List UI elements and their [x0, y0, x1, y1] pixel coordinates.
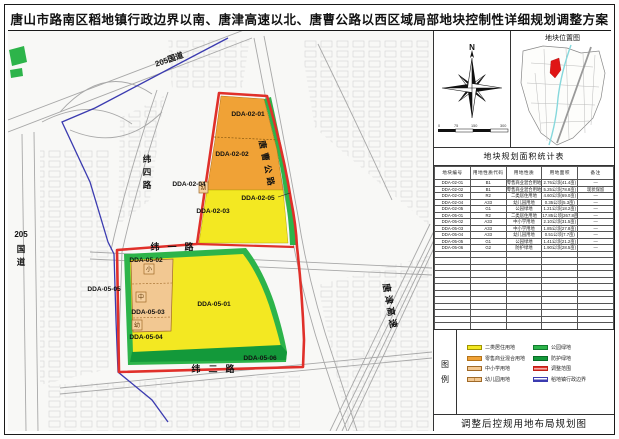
table-title: 地块规划面积统计表 — [434, 148, 614, 166]
legend-item: 调整范围 — [533, 365, 586, 372]
page-title: 唐山市路南区稻地镇行政边界以南、唐津高速以北、唐曹公路以西区域局部地块控制性详细… — [8, 6, 611, 31]
legend-swatch-school — [467, 366, 482, 371]
location-mini-map[interactable] — [511, 43, 612, 147]
legend-swatch-green — [533, 345, 548, 350]
svg-text:0: 0 — [438, 124, 440, 128]
map-label: DDA-02-03 — [196, 208, 230, 215]
right-panel: N 0 75 150 300 — [433, 30, 614, 431]
legend-label: 幼儿园用地 — [485, 376, 510, 383]
legend-label: 公园绿地 — [551, 344, 571, 351]
legend-swatch-blueline — [533, 377, 548, 382]
map-label: DDA-02-05 — [241, 195, 275, 202]
table-empty-row — [435, 323, 614, 330]
legend-label: 调整范围 — [551, 365, 571, 372]
legend-label: 零售商业混合用地 — [485, 355, 525, 362]
legend-items: 二类居住用地零售商业混合用地中小学用地幼儿园用地 公园绿地防护绿地调整范围稻地镇… — [457, 330, 614, 414]
legend-swatch-darkgreen — [533, 356, 548, 361]
plan-sheet: 唐山市路南区稻地镇行政边界以南、唐津高速以北、唐曹公路以西区域局部地块控制性详细… — [0, 0, 619, 439]
legend-item: 中小学用地 — [467, 365, 525, 372]
facility-glyph: 幼 — [134, 321, 140, 329]
table-column-header: 用地性质代码 — [470, 167, 506, 180]
compass-rose-icon — [442, 50, 502, 118]
map-label: DDA-05-01 — [197, 301, 231, 308]
legend-swatch-kindergarten — [467, 377, 482, 382]
legend-item: 零售商业混合用地 — [467, 355, 525, 362]
table-column-header: 用地面积 — [542, 167, 578, 180]
location-map-cell: 地块位置图 — [511, 30, 614, 148]
table-column-header: 备注 — [578, 167, 614, 180]
legend-label: 中小学用地 — [485, 365, 510, 372]
legend-item: 幼儿园用地 — [467, 376, 525, 383]
location-map-title: 地块位置图 — [511, 30, 614, 43]
svg-text:75: 75 — [454, 124, 458, 128]
table-column-header: 用地性质 — [506, 167, 542, 180]
map-label: 205 — [14, 230, 28, 239]
map-label: DDA-02-04 — [172, 181, 206, 188]
mini-map-outline — [521, 46, 605, 145]
legend-label: 二类居住用地 — [485, 344, 515, 351]
legend-swatch-yellow — [467, 345, 482, 350]
map-label: DDA-02-02 — [215, 151, 249, 158]
facility-glyph: 中 — [138, 293, 144, 301]
legend-item: 防护绿地 — [533, 355, 586, 362]
table-column-header: 地块编号 — [435, 167, 471, 180]
map-label: DDA-05-03 — [131, 309, 165, 316]
facility-glyph: 小 — [146, 265, 152, 273]
legend-swatch-redline — [533, 366, 548, 371]
map-label: DDA-05-02 — [129, 257, 163, 264]
map-label: 纬四路 — [143, 154, 152, 190]
legend-title: 图例 — [434, 330, 457, 414]
svg-text:150: 150 — [471, 124, 477, 128]
map-label: 纬一路 — [150, 241, 201, 252]
legend-item: 二类居住用地 — [467, 344, 525, 351]
table-row: DDA-02-02B1零售商业混合用地5.25公顷(78.8亩)现状保留 — [435, 186, 614, 193]
map-label: DDA-05-06 — [243, 355, 277, 362]
statistics-table-cell: 地块编号用地性质代码用地性质用地面积备注DDA-02-01B1零售商业混合用地2… — [434, 166, 614, 330]
legend-label: 稻地镇行政边界 — [551, 376, 586, 383]
compass-cell: N 0 75 150 300 — [434, 30, 511, 148]
land-use-map[interactable]: 幼小中幼DDA-02-01DDA-02-02DDA-02-04DDA-02-05… — [8, 30, 434, 431]
drawing-caption: 调整后控规用地布局规划图 — [434, 415, 614, 431]
svg-text:300: 300 — [500, 124, 506, 128]
map-label: 纬二路 — [191, 363, 242, 374]
legend-item: 稻地镇行政边界 — [533, 376, 586, 383]
statistics-table[interactable]: 地块编号用地性质代码用地性质用地面积备注DDA-02-01B1零售商业混合用地2… — [434, 166, 614, 330]
map-label: DDA-02-01 — [231, 111, 265, 118]
map-label: DDA-05-04 — [129, 334, 163, 341]
legend-item: 公园绿地 — [533, 344, 586, 351]
map-label: DDA-05-05 — [87, 286, 121, 293]
legend-label: 防护绿地 — [551, 355, 571, 362]
scale-bar: 0 75 150 300 — [438, 124, 508, 132]
legend-swatch-orange — [467, 356, 482, 361]
legend-cell: 图例 二类居住用地零售商业混合用地中小学用地幼儿园用地 公园绿地防护绿地调整范围… — [434, 330, 614, 415]
